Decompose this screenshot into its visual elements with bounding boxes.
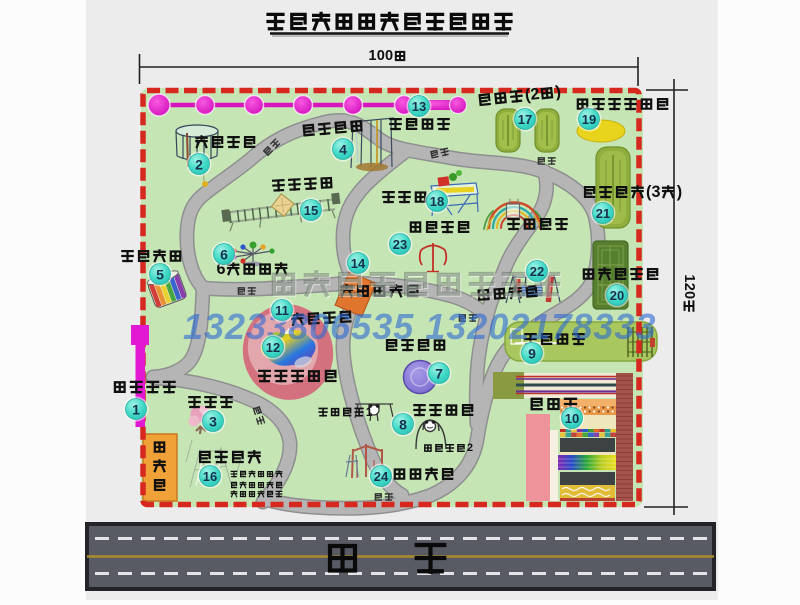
svg-text:7: 7: [435, 366, 443, 382]
svg-text:23: 23: [393, 237, 407, 252]
svg-text:14: 14: [351, 256, 366, 271]
svg-text:8: 8: [399, 417, 407, 433]
svg-text:0: 0: [385, 48, 393, 64]
svg-text:15: 15: [304, 203, 318, 218]
svg-text:6: 6: [220, 247, 228, 263]
svg-text:0: 0: [681, 291, 697, 299]
svg-text:22: 22: [530, 264, 544, 279]
svg-text:13: 13: [412, 99, 426, 114]
svg-text:3: 3: [209, 414, 217, 430]
svg-text:16: 16: [203, 469, 217, 484]
svg-text:18: 18: [430, 194, 444, 209]
svg-text:10: 10: [565, 411, 579, 426]
svg-text:4: 4: [339, 142, 347, 158]
svg-text:1: 1: [366, 405, 373, 419]
svg-text:19: 19: [582, 112, 596, 127]
svg-text:11: 11: [275, 303, 289, 318]
svg-text:): ): [677, 183, 682, 201]
svg-text:2: 2: [681, 283, 697, 291]
svg-text:9: 9: [528, 346, 536, 362]
svg-text:21: 21: [596, 206, 610, 221]
svg-text:24: 24: [374, 469, 389, 484]
svg-text:3: 3: [651, 183, 660, 201]
svg-text:1: 1: [132, 402, 140, 418]
svg-text:2: 2: [195, 157, 203, 173]
svg-text:2: 2: [529, 85, 540, 104]
svg-text:17: 17: [518, 112, 532, 127]
svg-text:20: 20: [610, 288, 624, 303]
svg-text:13233806535 13202178333: 13233806535 13202178333: [183, 306, 656, 347]
svg-text:5: 5: [156, 267, 164, 283]
svg-text:12: 12: [266, 340, 280, 355]
svg-text:2: 2: [467, 442, 473, 454]
svg-text:1: 1: [368, 48, 376, 64]
svg-text:0: 0: [377, 48, 385, 64]
svg-text:1: 1: [681, 274, 697, 282]
